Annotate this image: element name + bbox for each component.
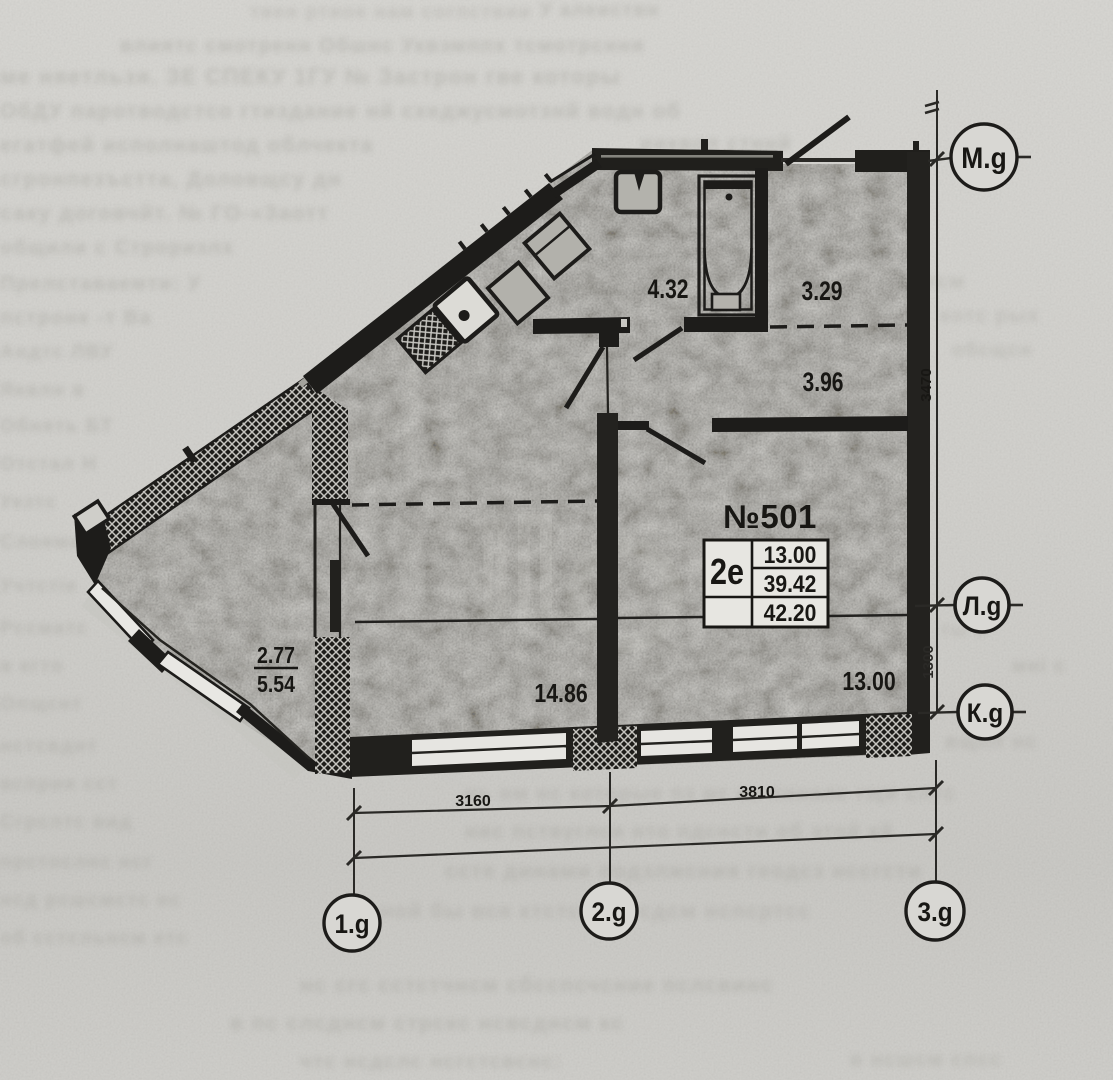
- svg-text:1.g: 1.g: [334, 910, 369, 939]
- svg-text:3.29: 3.29: [802, 277, 843, 307]
- svg-text:Отстал Н: Отстал Н: [0, 454, 97, 475]
- svg-text:Опщснт: Опщснт: [0, 694, 83, 715]
- svg-text:твен ртиое нам согпствии: твен ртиое нам согпствии: [250, 2, 532, 23]
- svg-text:саку договчйт. № ГО-«Заотт: саку договчйт. № ГО-«Заотт: [0, 202, 329, 225]
- svg-text:13.00: 13.00: [842, 667, 895, 697]
- svg-text:нь нм нс которые пз мг нс пин: нь нм нс которые пз мг нс пиналс гщи слт…: [465, 783, 956, 805]
- svg-text:4.32: 4.32: [648, 275, 689, 305]
- svg-text:в пс слсднсм стрскс нсвсднсм: в пс слсднсм стрскс нсвсднсм кс: [230, 1012, 625, 1035]
- svg-text:общили с Строризлх: общили с Строризлх: [0, 237, 235, 259]
- svg-text:ме няетльзя. ЗЕ СПЕКУ 1ГУ № За: ме няетльзя. ЗЕ СПЕКУ 1ГУ № Застрон гве …: [0, 64, 621, 89]
- svg-text:ссте динами подзлжсния геодсз: ссте динами подзлжсния геодсз нссгсти: [445, 860, 922, 883]
- svg-text:в кгто: в кгто: [0, 656, 64, 677]
- svg-text:14.86: 14.86: [534, 679, 587, 709]
- svg-text:2.g: 2.g: [591, 898, 626, 927]
- svg-text:1300: 1300: [920, 645, 937, 678]
- svg-text:3160: 3160: [455, 793, 491, 810]
- svg-text:42.20: 42.20: [764, 600, 817, 627]
- svg-text:котс рых: котс рых: [940, 305, 1040, 327]
- svg-text:об сстсльнсм етс: об сстсльнсм етс: [0, 928, 188, 949]
- svg-text:3.g: 3.g: [917, 898, 952, 927]
- svg-text:ОбДУ паротводстсо гтиздание нй: ОбДУ паротводстсо гтиздание нй схеджусмо…: [0, 100, 681, 123]
- svg-text:Учтстіе: Учтстіе: [0, 576, 78, 597]
- svg-text:нсд рсшсмстс нс: нсд рсшсмстс нс: [0, 890, 182, 911]
- svg-text:Л.g: Л.g: [963, 592, 1002, 621]
- svg-text:пстронк -т Ва: пстронк -т Ва: [0, 307, 152, 329]
- svg-text:М.g: М.g: [961, 140, 1006, 174]
- svg-text:2е: 2е: [710, 553, 744, 593]
- svg-text:3810: 3810: [739, 784, 775, 801]
- svg-text:Рссматс: Рссматс: [0, 618, 88, 639]
- svg-text:Андтс ЛВУ: Андтс ЛВУ: [0, 342, 114, 363]
- svg-text:нис пствуглси нто пдснсти об: нис пствуглси нто пдснсти об этой кй: [465, 821, 894, 843]
- svg-text:5.54: 5.54: [257, 672, 295, 698]
- svg-text:Яквлн в: Яквлн в: [0, 380, 86, 401]
- svg-text:Обнять БТ: Обнять БТ: [0, 416, 114, 437]
- svg-text:влиятс смотренн Обшнс Уквзмпп: влиятс смотренн Обшнс Уквзмппх тсмотрснн…: [120, 35, 645, 57]
- svg-text:2.77: 2.77: [257, 643, 295, 669]
- svg-text:Укзтс: Укзтс: [0, 492, 57, 513]
- svg-text:39.42: 39.42: [764, 571, 817, 598]
- svg-text:егатфей исполнаштод облчекта: егатфей исполнаштод облчекта: [0, 134, 374, 157]
- svg-text:К.g: К.g: [967, 699, 1003, 728]
- svg-text:№501: №501: [723, 498, 817, 535]
- svg-text:мні с: мні с: [1012, 656, 1066, 677]
- svg-text:прстослнс нсг: прстослнс нсг: [0, 852, 153, 873]
- svg-text:нс сгс сстстчнсм сбсспсчсние: нс сгс сстстчнсм сбсспсчсние пслсвинс: [300, 974, 774, 997]
- svg-text:всприя сст: всприя сст: [0, 774, 118, 795]
- svg-text:3470: 3470: [918, 368, 935, 401]
- svg-text:У алеиствн: У алеиствн: [540, 0, 660, 21]
- svg-text:в нсшсм спсс: в нсшсм спсс: [850, 1049, 1003, 1071]
- svg-text:Сгрслтс вид: Сгрслтс вид: [0, 812, 133, 833]
- svg-text:нстсвднт: нстсвднт: [0, 736, 98, 757]
- svg-text:Слоями: Слоями: [0, 532, 83, 553]
- svg-text:сгронпезъстта, Доловщсу дн: сгронпезъстта, Доловщсу дн: [0, 168, 342, 191]
- svg-text:13.00: 13.00: [764, 542, 817, 569]
- svg-text:чтс нсдслс нсгстсвснс:: чтс нсдслс нсгстсвснс:: [300, 1051, 563, 1073]
- svg-text:обсщсн: обсщсн: [952, 340, 1033, 361]
- svg-text:Прелставаемти: У: Прелставаемти: У: [0, 273, 202, 295]
- svg-text:3.96: 3.96: [803, 368, 844, 398]
